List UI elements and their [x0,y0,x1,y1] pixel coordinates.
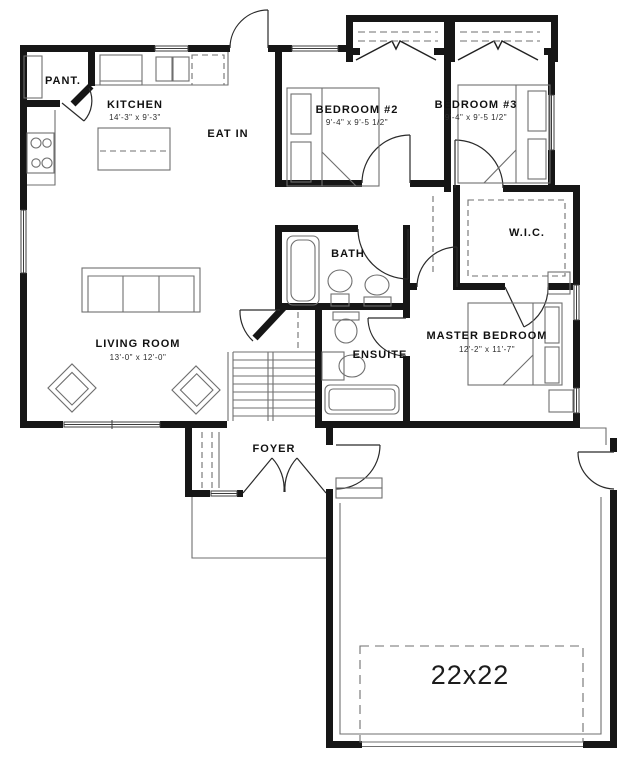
room-label-wic: W.I.C. [509,227,545,239]
bed-icon-master [468,272,573,412]
room-label-kitchen: KITCHEN [107,99,163,111]
room-label-bath: BATH [331,248,365,260]
room-label-eat-in: EAT IN [207,128,248,140]
kitchen-island [98,128,170,170]
room-labels: PANT. KITCHEN 14'-3" x 9'-3" EAT IN BEDR… [45,75,547,690]
room-label-pantry: PANT. [45,75,81,87]
sofa-icon [82,268,200,312]
kitchen-side-counter [27,110,55,185]
porch-outline [192,497,326,558]
floor-plan-drawing: PANT. KITCHEN 14'-3" x 9'-3" EAT IN BEDR… [0,0,643,768]
armchair-icon-right [172,366,220,414]
bath-sink-icon [328,270,352,292]
bath-toilet-icon [365,275,389,295]
room-label-master: MASTER BEDROOM [427,330,548,342]
room-label-bedroom3: BEDROOM #3 [435,99,518,111]
room-dims-bedroom3: 9'-4" x 9'-5 1/2" [445,113,507,122]
ensuite-vanity [322,352,344,380]
garage-step-line [580,428,606,445]
armchair-icon-left [48,364,96,412]
floor-plan-page: PANT. KITCHEN 14'-3" x 9'-3" EAT IN BEDR… [0,0,643,768]
room-label-foyer: FOYER [253,443,296,455]
bed-icon-bedroom2 [287,88,379,186]
room-label-living: LIVING ROOM [96,338,181,350]
angled-walls [73,86,285,338]
bathtub-icon [287,236,319,305]
room-label-ensuite: ENSUITE [353,349,408,361]
fridge-icon [192,55,224,85]
room-label-bedroom2: BEDROOM #2 [316,104,399,116]
ensuite-shower-icon [325,385,399,414]
kitchen-sink-icon [156,57,172,81]
room-dims-living: 13'-0" x 12'-0" [110,353,167,362]
garage-interior-line [340,497,601,734]
room-label-garage-size: 22x22 [431,660,510,690]
room-dims-kitchen: 14'-3" x 9'-3" [109,113,161,122]
dashed-lines [100,55,583,742]
stairs [228,352,315,421]
room-dims-master: 12'-2" x 11'-7" [459,345,515,354]
room-dims-bedroom2: 9'-4" x 9'-5 1/2" [326,118,388,127]
